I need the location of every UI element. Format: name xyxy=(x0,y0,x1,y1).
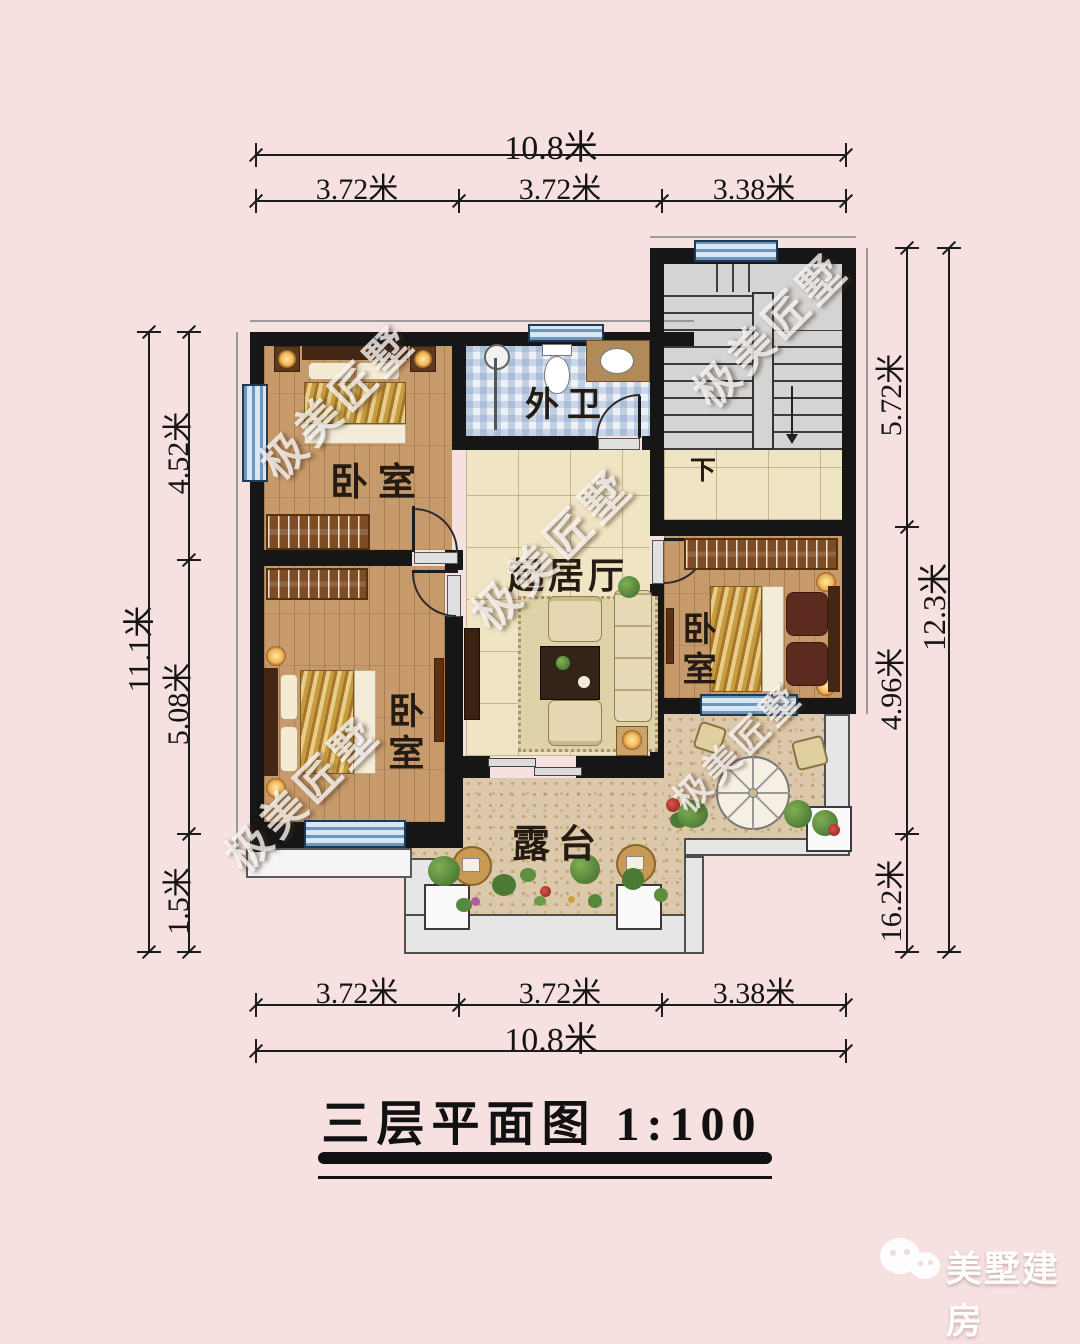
bedroom3-bed-headboard xyxy=(828,586,840,692)
living-floor-lamp xyxy=(622,730,642,750)
terrace-planter3-flowers xyxy=(828,824,840,836)
dim-right-total: 12.3米 xyxy=(909,547,955,667)
floor-plan-page: { "title": "三层平面图 1:100", "watermark": "… xyxy=(0,0,1080,1308)
terrace-planter-2 xyxy=(616,884,662,930)
bathroom-door-sill xyxy=(598,438,640,450)
bedroom2-window xyxy=(304,820,406,848)
dim-right-seg-2: 4.96米 xyxy=(866,634,910,744)
wall-bedroom-divider xyxy=(250,550,412,566)
living-armchair-bottom xyxy=(548,700,602,746)
dim-left-inner-line xyxy=(188,332,190,952)
terrace-planter-1 xyxy=(424,884,470,930)
wall-bathroom-right xyxy=(650,332,664,450)
eave-line-top xyxy=(250,320,694,322)
living-armchair-top xyxy=(548,596,602,642)
bedroom1-door-sill xyxy=(414,552,458,564)
bedroom3-bed-blanket xyxy=(710,586,762,692)
wall-living-east xyxy=(650,450,664,520)
shower-rod xyxy=(494,358,497,430)
bedroom-top-left-label: 卧室 xyxy=(298,462,458,506)
brand-logo-text: 美墅建房 xyxy=(946,1240,1080,1344)
dim-left-seg-1: 4.52米 xyxy=(153,398,197,508)
title-underline-thin xyxy=(318,1176,772,1179)
wall-bedroom2-south-east xyxy=(406,822,463,848)
bedroom2-lamp-top xyxy=(266,646,286,666)
terrace-table-2-book xyxy=(626,856,644,870)
bedroom3-pillow-1 xyxy=(786,592,828,636)
living-tv-cabinet xyxy=(464,628,480,720)
dim-top-outer-line xyxy=(256,154,846,156)
terrace-umbrella-pole xyxy=(748,788,758,798)
page-title: 三层平面图 1:100 xyxy=(292,1084,792,1154)
terrace-bush-southwest xyxy=(428,856,460,886)
bedroom3-tv-board xyxy=(666,608,674,664)
stair-top-step-line-2 xyxy=(732,264,734,292)
stair-down-arrow-shaft xyxy=(791,386,793,436)
title-underline-thick xyxy=(318,1152,772,1164)
bedroom1-lamp-left xyxy=(278,350,296,368)
dim-top-inner-line xyxy=(256,200,846,202)
terrace-flowers-south xyxy=(540,886,551,897)
stair-down-label: 下 xyxy=(686,456,720,486)
terrace-bush-east xyxy=(784,800,812,828)
bedroom-bottom-left-label: 卧室 xyxy=(382,674,423,794)
bedroom3-pillow-2 xyxy=(786,642,828,686)
coffee-table-tray xyxy=(578,676,590,688)
wechat-icon-small xyxy=(910,1252,940,1279)
dim-top-total: 10.8米 xyxy=(451,120,651,169)
dim-left-seg-3: 1.5米 xyxy=(153,846,197,956)
terrace-label: 露台 xyxy=(498,824,618,868)
wall-bathroom-bottom-east xyxy=(642,436,664,450)
dim-left-outer-line xyxy=(148,332,150,952)
coffee-table-plant xyxy=(556,656,570,670)
stair-down-arrow-head xyxy=(786,434,798,444)
bedroom3-wardrobe xyxy=(684,538,838,570)
dim-left-seg-2: 5.08米 xyxy=(153,649,197,759)
dim-bottom-total: 10.8米 xyxy=(451,1012,651,1061)
wall-living-south-west xyxy=(445,756,490,778)
terrace-table-1-book xyxy=(462,858,480,872)
wall-bedroom3-top xyxy=(650,520,856,536)
dim-right-seg-3: 16.2米 xyxy=(866,846,910,956)
dim-bottom-inner-line xyxy=(256,1004,846,1006)
stair-top-step-line-3 xyxy=(748,264,750,292)
bathroom-label: 外卫 xyxy=(512,386,622,425)
eave-line-left xyxy=(236,332,238,852)
toilet-tank xyxy=(542,344,572,356)
stair-window xyxy=(694,240,778,262)
bedroom2-bed-headboard xyxy=(264,668,278,776)
wall-right-outer xyxy=(842,248,856,714)
bedroom1-wardrobe xyxy=(266,514,370,550)
bedroom2-tv-board xyxy=(434,658,444,742)
shower-head xyxy=(484,344,510,370)
bedroom2-wardrobe xyxy=(266,568,368,600)
dim-bottom-outer-line xyxy=(256,1050,846,1052)
living-coffee-table xyxy=(540,646,600,700)
terrace-sliding-door-panel-2 xyxy=(534,767,582,776)
eave-line-stair-top xyxy=(650,236,856,238)
dim-right-seg-1: 5.72米 xyxy=(866,340,910,450)
wall-bathroom-bottom-west xyxy=(452,436,598,450)
brand-logo: 美墅建房 xyxy=(880,1230,1080,1290)
wall-bathroom-left xyxy=(452,332,466,450)
bedroom2-pillow-1 xyxy=(280,674,298,720)
stair-top-step-line-1 xyxy=(716,264,718,292)
terrace-sliding-door-panel-1 xyxy=(488,758,536,767)
vanity-sink xyxy=(600,348,634,374)
bedroom-right-label: 卧室 xyxy=(676,596,715,706)
terrace-railing-center-right xyxy=(684,856,704,954)
living-sofa xyxy=(614,590,652,722)
wall-bedroom2-east xyxy=(445,616,463,822)
